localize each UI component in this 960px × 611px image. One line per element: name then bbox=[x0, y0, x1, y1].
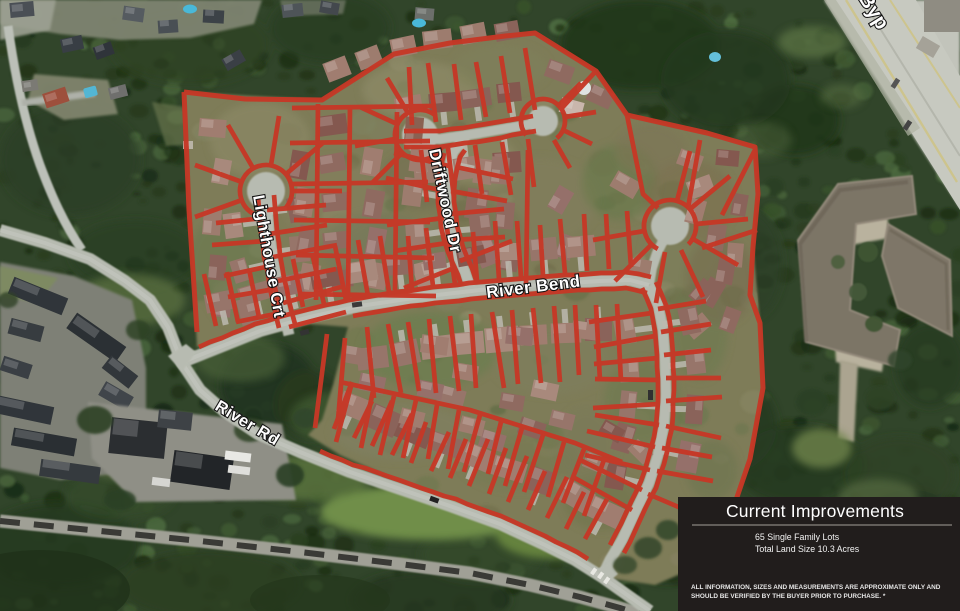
svg-text:Current Improvements: Current Improvements bbox=[726, 501, 904, 521]
svg-text:Total Land Size 10.3 Acres: Total Land Size 10.3 Acres bbox=[755, 544, 860, 554]
svg-text:SHOULD BE VERIFIED BY THE BUYE: SHOULD BE VERIFIED BY THE BUYER PRIOR TO… bbox=[691, 593, 886, 600]
svg-text:65 Single Family Lots: 65 Single Family Lots bbox=[755, 532, 840, 542]
svg-text:ALL INFORMATION, SIZES AND MEA: ALL INFORMATION, SIZES AND MEASUREMENTS … bbox=[691, 584, 941, 591]
